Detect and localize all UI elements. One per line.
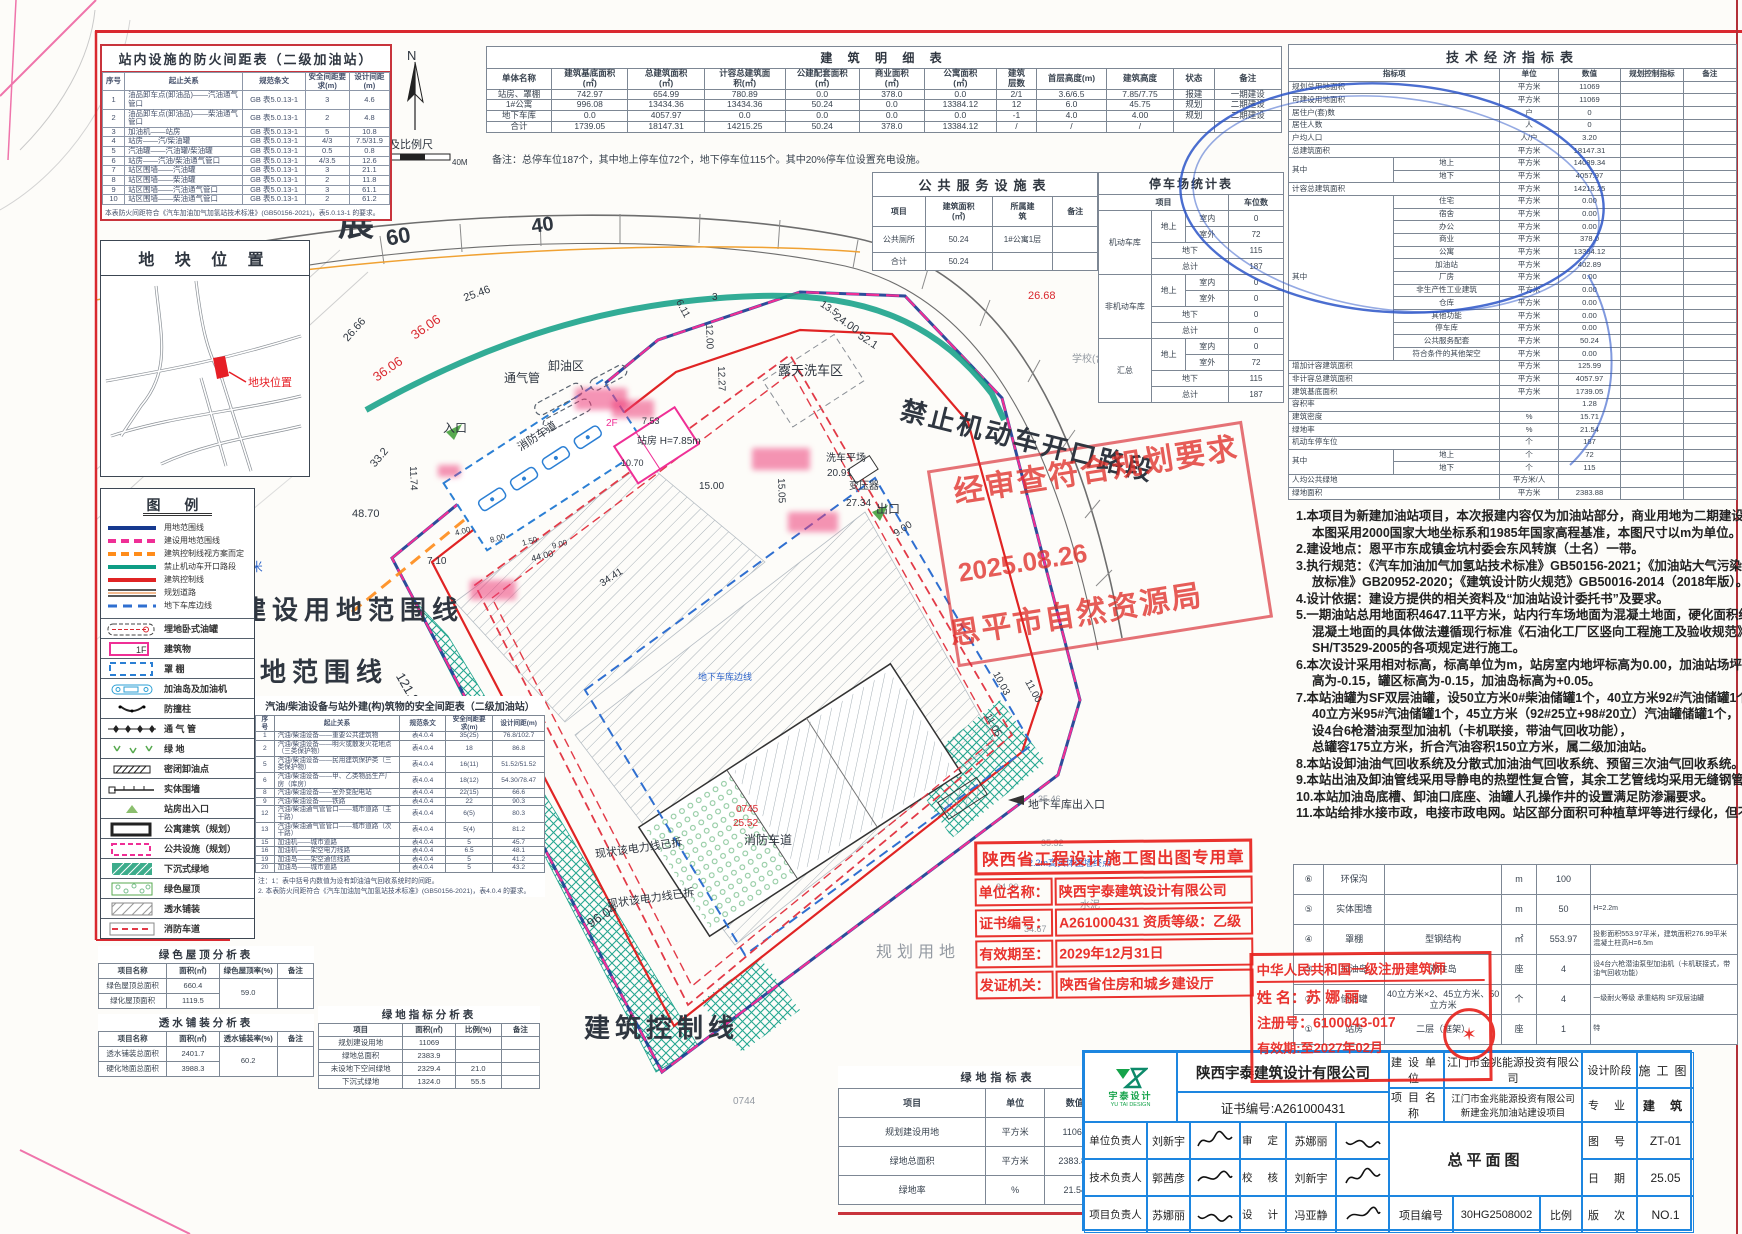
table-cell — [1683, 398, 1736, 411]
table-cell — [277, 979, 313, 1009]
table-cell: GB 表5.0.13-1 — [243, 109, 305, 127]
table-cell: 商业 — [1393, 233, 1500, 246]
table-cell — [1621, 233, 1683, 246]
table-cell: 办公 — [1393, 221, 1500, 234]
table-cell: 绿地总面积 — [839, 1147, 986, 1176]
plan-label: 1.50 — [521, 535, 538, 548]
table-cell — [1621, 348, 1683, 361]
plan-label: 3 — [712, 292, 718, 303]
plan-label: 40M — [452, 158, 468, 167]
table-cell: 8 — [103, 175, 125, 185]
table-cell: 单位 — [1500, 69, 1558, 82]
table-cell: 个 — [1500, 436, 1558, 449]
plan-label: 11.74 — [407, 466, 419, 491]
table-cell: 序号 — [103, 73, 125, 91]
table-cell: 平方米 — [1500, 335, 1558, 348]
plan-label: 35.46 — [1038, 794, 1061, 804]
table-cell: % — [986, 1176, 1045, 1205]
plan-label: 9.00 — [551, 538, 568, 551]
table-cell: 13384.12 — [924, 121, 996, 132]
table-cell: 1119.5 — [167, 994, 219, 1009]
table-cell: 2383.9 — [403, 1050, 455, 1063]
table-cell: 1 — [256, 732, 275, 741]
plan-label: 10.70 — [621, 458, 644, 468]
table-cell: 115 — [1558, 462, 1620, 475]
table-cell: 其他功能 — [1393, 310, 1500, 323]
table-cell: 总建筑面积 — [1289, 145, 1500, 158]
plan-label: 20.91 — [827, 468, 852, 479]
table-cell — [1621, 310, 1683, 323]
table-cell: 0.00 — [1558, 297, 1620, 310]
stamp-row: 发证机关：陕西省住房和城乡建设厅 — [976, 969, 1254, 1000]
legend-symbol-item: 公共设施（规划） — [101, 838, 254, 858]
table-cell: 罩棚 — [1324, 925, 1385, 955]
legend-symbol-item: 罩 棚 — [101, 658, 254, 678]
table-cell: 透水铺装总面积 — [99, 1047, 167, 1062]
table-cell: 地下 — [1151, 243, 1228, 259]
plan-label: 0744 — [733, 1096, 755, 1107]
table-cell: 13384.12 — [924, 100, 996, 111]
plan-label: 0745 — [736, 804, 758, 815]
plan-label: 地下车库边线 — [698, 670, 752, 683]
table-cell: 汽油/柴油设备——甲、乙类物品生产厂房（库房） — [274, 773, 400, 789]
table-cell: 780.89 — [704, 89, 785, 100]
table-cell: 报建 — [1174, 89, 1214, 100]
table-cell: 表4.0.4 — [400, 822, 445, 838]
design-note-line: 放标准》GB20952-2020；《建筑设计防火规范》GB50016-2014（… — [1296, 574, 1726, 591]
table-cell: 建筑密度 — [1289, 411, 1500, 424]
table-cell: 3.20 — [1558, 132, 1620, 145]
site-location-panel: 地 块 位 置 地块位置 — [100, 240, 310, 477]
table-cell: 平方米 — [1500, 183, 1558, 196]
legend-symbol-item: 加油岛及加油机 — [101, 678, 254, 698]
table-cell: 平方米 — [986, 1147, 1045, 1176]
signature — [1190, 1122, 1240, 1159]
table-cell — [1621, 411, 1683, 424]
table-cell — [1621, 145, 1683, 158]
table-cell: 环保沟 — [1324, 865, 1385, 895]
table-cell: 平方米 — [1500, 373, 1558, 386]
major: 建 筑 — [1637, 1088, 1694, 1122]
table-cell: 3988.3 — [167, 1062, 219, 1077]
plan-label: 44.00 — [530, 548, 554, 563]
table-cell — [1621, 322, 1683, 335]
table-cell: 汽油/柴油通气管管口——城市道路（次干路） — [274, 822, 400, 838]
table-cell: 19 — [256, 855, 275, 864]
table-cell: 14215.25 — [704, 121, 785, 132]
table-cell: 序 号 — [256, 716, 275, 732]
table-cell: 设计间距(m) — [349, 73, 389, 91]
table-cell: 平方米 — [1500, 348, 1558, 361]
table-cell: / — [1037, 121, 1107, 132]
table-cell — [1621, 449, 1683, 462]
plan-label: 11.00 — [1022, 678, 1043, 705]
table-cell: 378.0 — [859, 89, 924, 100]
table-cell: 0 — [1229, 275, 1284, 291]
table-cell: 平方米 — [1500, 246, 1558, 259]
project-number: 30HG2508002 — [1453, 1196, 1540, 1233]
table-cell: 比例(%) — [455, 1024, 501, 1037]
table-cell: 81.2 — [493, 822, 545, 838]
table-cell: 加油机——架空电力线路 — [274, 847, 400, 856]
table-cell: 0.0 — [859, 111, 924, 122]
table-cell: 面积(㎡) — [167, 1032, 219, 1047]
table-cell: 18(12) — [445, 773, 492, 789]
table-cell — [455, 1037, 501, 1050]
table-cell: 透水铺装率(%) — [219, 1032, 277, 1047]
drawing-title: 总平面图 — [1389, 1122, 1582, 1196]
table-cell: / — [996, 121, 1036, 132]
table-cell: 备注 — [501, 1024, 539, 1037]
table-cell: 1324.0 — [403, 1076, 455, 1089]
plan-label: 27.34 — [846, 498, 871, 509]
building1f-icon: 1F — [104, 641, 160, 657]
plan-label: 2F — [606, 418, 618, 429]
table-cell: 4057.97 — [1558, 170, 1620, 183]
table-cell: 0 — [1229, 307, 1284, 323]
table-cell: 居住户(套)数 — [1289, 107, 1500, 120]
table-cell: m — [1502, 865, 1536, 895]
pinkdash-line-icon — [104, 535, 160, 547]
table-cell — [501, 1037, 539, 1050]
table-cell: 地下 — [1151, 371, 1228, 387]
date: 25.05 — [1637, 1159, 1694, 1196]
table-cell: 11069 — [1558, 81, 1620, 94]
table-cell: 加油岛——架空通信线路 — [274, 855, 400, 864]
plan-label: 48.70 — [352, 508, 380, 520]
table-cell: 未设地下空间绿地 — [319, 1063, 403, 1076]
table-cell: 12 — [256, 806, 275, 822]
table-cell: 4057.97 — [1558, 373, 1620, 386]
table-cell: 2/1 — [996, 89, 1036, 100]
table-cell: 规划建设用地 — [319, 1037, 403, 1050]
table-cell: 绿地总面积 — [319, 1050, 403, 1063]
table-cell: 45.7 — [493, 838, 545, 847]
design-note-line: 总罐容175立方米，折合汽油容积150立方米，属二级加油站。 — [1296, 739, 1726, 756]
table-cell: 125.99 — [1558, 360, 1620, 373]
plan-label: 33.2 — [368, 446, 391, 470]
table-cell: 378.0 — [1558, 233, 1620, 246]
table-cell: 平方米 — [1500, 284, 1558, 297]
table-cell — [1621, 272, 1683, 285]
table-cell: 人均公共绿地 — [1289, 475, 1500, 488]
table-cell: 建筑面积 (㎡) — [925, 197, 992, 227]
table-cell: 型钢结构 — [1385, 925, 1502, 955]
table-cell: GB 表5.0.13-1 — [243, 175, 305, 185]
plan-label: 34.41 — [598, 566, 625, 589]
table-cell — [1621, 487, 1683, 500]
table-cell — [1683, 322, 1736, 335]
legend-symbol-item: 防撞柱 — [101, 698, 254, 718]
plan-label: N — [407, 48, 416, 63]
table-cell: 5 — [445, 864, 492, 873]
table-cell: 数值 — [1558, 69, 1620, 82]
legend-symbol-item: 实体围墙 — [101, 778, 254, 798]
table-cell: 0 — [1229, 291, 1284, 307]
table-cell: 公寓 — [1393, 246, 1500, 259]
table-cell: 2 — [305, 175, 349, 185]
table-cell: 654.99 — [628, 89, 704, 100]
table-cell: 地下车库 — [487, 111, 552, 122]
table-cell: 机动车停车位 — [1289, 436, 1500, 449]
table-cell — [1621, 208, 1683, 221]
table-cell: 项目 — [839, 1089, 986, 1118]
table-cell: 21.0 — [455, 1063, 501, 1076]
table-cell: 厂房 — [1393, 272, 1500, 285]
table-cell: ㎡ — [1502, 925, 1536, 955]
sunken-icon — [104, 861, 160, 877]
plan-label: 2025.08.26 — [956, 538, 1089, 589]
table-cell — [1683, 297, 1736, 310]
red-line-icon — [104, 574, 160, 586]
table-cell: 居住人数 — [1289, 119, 1500, 132]
table-cell: 4.6 — [349, 91, 389, 109]
plan-label: 7.53 — [642, 416, 660, 426]
table-cell: 备注 — [1053, 197, 1098, 227]
table-cell: 符合条件的其他架空 — [1393, 348, 1500, 361]
table-cell: 下沉式绿地 — [319, 1076, 403, 1089]
site-marker — [213, 356, 229, 379]
plan-label: 现状该电力线已拆 — [606, 884, 695, 912]
table-cell: 4.8 — [349, 109, 389, 127]
table-cell: GB 表5.0.13-1 — [243, 91, 305, 109]
table-cell: 规划建设用地 — [839, 1118, 986, 1147]
legend-symbol-item: 下沉式绿地 — [101, 858, 254, 878]
table-cell: 0.5 — [305, 147, 349, 157]
permeable-paving-analysis-table: 透水铺装分析表 项目名称面积(㎡)透水铺装率(%)备注透水铺装总面积2401.7… — [98, 1014, 314, 1077]
table-cell: % — [1500, 424, 1558, 437]
svg-text:1F: 1F — [136, 645, 147, 655]
table-cell: 50 — [1536, 895, 1591, 925]
table-cell: 室外 — [1186, 355, 1229, 371]
table-cell: 61.2 — [349, 195, 389, 205]
table-cell — [1683, 462, 1736, 475]
redaction-patch — [438, 465, 460, 477]
table-cell: 平方米 — [1500, 170, 1558, 183]
table-cell: 加油站 — [1393, 259, 1500, 272]
table-cell: 16 — [256, 847, 275, 856]
table-cell: 加油机——城市道路 — [274, 838, 400, 847]
table-cell — [1683, 360, 1736, 373]
table-cell: 10 — [103, 195, 125, 205]
table-cell — [1558, 475, 1620, 488]
table-cell: 660.4 — [167, 979, 219, 994]
table-cell: 72 — [1229, 227, 1284, 243]
cert-number: 证书编号:A261000431 — [1177, 1092, 1389, 1122]
table-cell: 宿舍 — [1393, 208, 1500, 221]
table-cell — [1683, 208, 1736, 221]
green-roof-analysis-table: 绿色屋顶分析表 项目名称面积(㎡)绿色屋顶率(%)备注绿色屋顶总面积660.45… — [98, 946, 314, 1009]
table-cell: 13 — [256, 822, 275, 838]
table-cell: 4.00 — [1106, 111, 1173, 122]
table-cell: 18147.31 — [1558, 145, 1620, 158]
architect-stamp: 中华人民共和国一级注册建筑师 姓 名：苏 娜 丽 注册号：6100043-017… — [1249, 951, 1492, 1083]
table-title: 建 筑 明 细 表 — [486, 46, 1282, 68]
plan-label: 96.04 — [584, 900, 619, 930]
design-note-line: 9.本站出油及卸油管线采用导静电的热塑性复合管，其余工艺管线均采用无缝钢管。 — [1296, 772, 1726, 789]
plan-label: 6.11 — [673, 298, 692, 320]
table-cell: 0.00 — [1558, 272, 1620, 285]
table-cell: 建筑 层数 — [996, 69, 1036, 90]
table-cell: 其中 — [1289, 157, 1394, 182]
table-cell: 一级耐火等级 承重结构 SF双层油罐 — [1591, 985, 1738, 1015]
table-cell: 4 — [1536, 955, 1591, 985]
table-cell: 个 — [1502, 985, 1536, 1015]
table-cell: 18 — [445, 740, 492, 756]
table-cell — [1621, 373, 1683, 386]
table-cell: 规范条文 — [400, 716, 445, 732]
table-cell — [1683, 475, 1736, 488]
table-cell: 规范条文 — [243, 73, 305, 91]
table-cell: 5 — [445, 838, 492, 847]
design-note-line: 11.本站给排水接市政，电接市政电网。站区部分面积可种植草坪等进行绿化，但不得种… — [1296, 805, 1726, 822]
table-title: 透水铺装分析表 — [98, 1014, 314, 1031]
table-cell: 22(15) — [445, 789, 492, 798]
firelane-icon — [104, 921, 160, 937]
table-cell — [1683, 335, 1736, 348]
table-cell: 硬化地面总面积 — [99, 1062, 167, 1077]
table-cell — [1621, 157, 1683, 170]
table-cell: 合计 — [873, 253, 926, 271]
legend-panel: 图 例 用地范围线建设用地范围线建筑控制线视方案而定禁止机动车开口路段建筑控制线… — [100, 488, 255, 939]
legend-symbol-item: 绿色屋顶 — [101, 878, 254, 898]
figure-number: ZT-01 — [1637, 1122, 1694, 1159]
table-title: 绿地指标分析表 — [318, 1006, 540, 1023]
design-note-line: 设4台6枪潜油泵型加油机（卡机联接，带油气回收功能）， — [1296, 723, 1726, 740]
plan-label: 规划用地 — [876, 938, 960, 962]
table-cell — [1053, 253, 1098, 271]
table-cell: 80.3 — [493, 806, 545, 822]
table-cell: 76.8/102.7 — [493, 732, 545, 741]
table-cell: 50.24 — [925, 227, 992, 253]
legend-line-item: 建筑控制线 — [101, 573, 254, 586]
table-cell: 115 — [1229, 371, 1284, 387]
table-cell: 3.6/6.5 — [1037, 89, 1107, 100]
plan-label: 7.10 — [427, 556, 446, 567]
legend-symbol-item: 消防车道 — [101, 918, 254, 938]
table-cell: 备注 — [1214, 69, 1281, 90]
table-cell — [1053, 227, 1098, 253]
table-cell — [1621, 462, 1683, 475]
table-cell — [1683, 81, 1736, 94]
table-cell — [1621, 107, 1683, 120]
table-cell: GB 表5.0.13-1 — [243, 195, 305, 205]
table-cell: 室外 — [1186, 227, 1229, 243]
table-cell: 21.54 — [1558, 424, 1620, 437]
table-cell: 0 — [1229, 339, 1284, 355]
table-cell: 1 — [103, 91, 125, 109]
table-cell: 表4.0.4 — [400, 773, 445, 789]
table-cell — [1621, 335, 1683, 348]
table-cell: 户均人口 — [1289, 132, 1500, 145]
panel-title: 地 块 位 置 — [101, 241, 309, 276]
table-cell — [1621, 424, 1683, 437]
plan-label: 25.52 — [733, 818, 758, 829]
version: NO.1 — [1637, 1196, 1694, 1233]
tank-icon — [104, 621, 160, 637]
table-cell: 机动车库 — [1099, 211, 1152, 275]
table-cell — [1621, 81, 1683, 94]
permeable-icon — [104, 901, 160, 917]
table-cell: 187 — [1229, 387, 1284, 403]
table-cell: 1.28 — [1558, 398, 1620, 411]
table-cell: 汽油/柴油通气管管口——城市道路（主干路） — [274, 806, 400, 822]
table-cell — [1683, 284, 1736, 297]
legend-line-item: 建设用地范围线 — [101, 534, 254, 547]
table-cell: 平方米 — [986, 1118, 1045, 1147]
table-cell: 增加计容建筑面积 — [1289, 360, 1500, 373]
table-cell: 1#公寓1层 — [992, 227, 1053, 253]
table-cell: 0.00 — [1558, 322, 1620, 335]
plan-label: 11.05 — [982, 712, 1003, 739]
table-cell — [1683, 132, 1736, 145]
table-cell: 室内 — [1186, 339, 1229, 355]
table-cell: 其中 — [1289, 195, 1394, 360]
table-cell — [1683, 259, 1736, 272]
table-cell: 备注 — [277, 964, 313, 979]
table-cell: H=2.2m — [1591, 895, 1738, 925]
table-cell: 43.2 — [493, 864, 545, 873]
design-cert-stamp: 陕西省工程设计施工图出图专用章 单位名称：陕西宇泰建筑设计有限公司证书编号：A2… — [974, 839, 1254, 1003]
plan-label: 26.66 — [341, 316, 368, 344]
table-cell: 绿地率 — [839, 1176, 986, 1205]
parking-statistics-table: 停车场统计表 项目车位数机动车库地上室内0室外72地下115总计187非机动车库… — [1098, 172, 1284, 403]
plan-label: 入口 — [443, 419, 467, 436]
table-cell: 其中 — [1289, 449, 1394, 474]
table-cell — [1621, 436, 1683, 449]
plan-label: 消防车道 — [514, 417, 560, 454]
legend-symbol-item: 公寓建筑（规划） — [101, 818, 254, 838]
legend-symbol-item: 埋地卧式油罐 — [101, 618, 254, 638]
table-cell — [1683, 424, 1736, 437]
table-cell: 规划 — [1174, 111, 1214, 122]
legend-line-item: 用地范围线 — [101, 521, 254, 534]
table-cell: 66.6 — [493, 789, 545, 798]
green-index-analysis-table: 绿地指标分析表 项目面积(㎡)比例(%)备注规划建设用地11069绿地总面积23… — [318, 1006, 540, 1089]
plan-label: 10.03 — [990, 670, 1011, 697]
tech-econ-indicator-table: 技术经济指标表 指标项单位数值规划控制指标备注规划总用地面积平方米11069可建… — [1288, 44, 1737, 500]
table-cell — [1621, 195, 1683, 208]
table-cell: 项目名称 — [99, 1032, 167, 1047]
table-cell: 建筑基底面积 (㎡) — [552, 69, 628, 90]
table-cell: 可建设用地面积 — [1289, 94, 1500, 107]
table-cell: 72 — [1558, 449, 1620, 462]
table-cell: 站房、罩棚 — [487, 89, 552, 100]
table-cell — [1621, 297, 1683, 310]
table-cell: 6(5) — [445, 806, 492, 822]
design-note-line: SH/T3529-2005的各项规定进行施工。 — [1296, 640, 1726, 657]
building-detail-table: 建 筑 明 细 表 单体名称建筑基底面积 (㎡)总建筑面积 (㎡)计容总建筑面 … — [486, 46, 1282, 133]
table-cell — [1621, 119, 1683, 132]
table-cell: 仓库 — [1393, 297, 1500, 310]
table-cell: 指标项 — [1289, 69, 1500, 82]
table-cell: 2 — [256, 740, 275, 756]
table-cell: 0.00 — [1558, 208, 1620, 221]
table-cell — [1621, 132, 1683, 145]
table-cell: 规划 — [1174, 100, 1214, 111]
design-note-line: 7.本站油罐为SF双层油罐，设50立方米0#柴油储罐1个，40立方米92#汽油储… — [1296, 690, 1726, 707]
table-cell: 项目 — [319, 1024, 403, 1037]
table-cell: 48.1 — [493, 847, 545, 856]
table-cell: 50.24 — [785, 100, 859, 111]
table-cell: 4057.97 — [628, 111, 704, 122]
fire-distance-table: 站内设施的防火间距表（二级加油站） 序号起止关系规范条文安全间距要求(m)设计间… — [100, 44, 392, 221]
table-cell — [1683, 170, 1736, 183]
design-note-line: 2.建设地点：恩平市东成镇金坑村委会东风转旗（土名）一带。 — [1296, 541, 1726, 558]
table-cell: 16(11) — [445, 756, 492, 772]
table-cell: 室外 — [1186, 291, 1229, 307]
table-footnote: 本表防火间距符合《汽车加油加气加氢站技术标准》(GB50156-2021)，表5… — [102, 205, 390, 219]
